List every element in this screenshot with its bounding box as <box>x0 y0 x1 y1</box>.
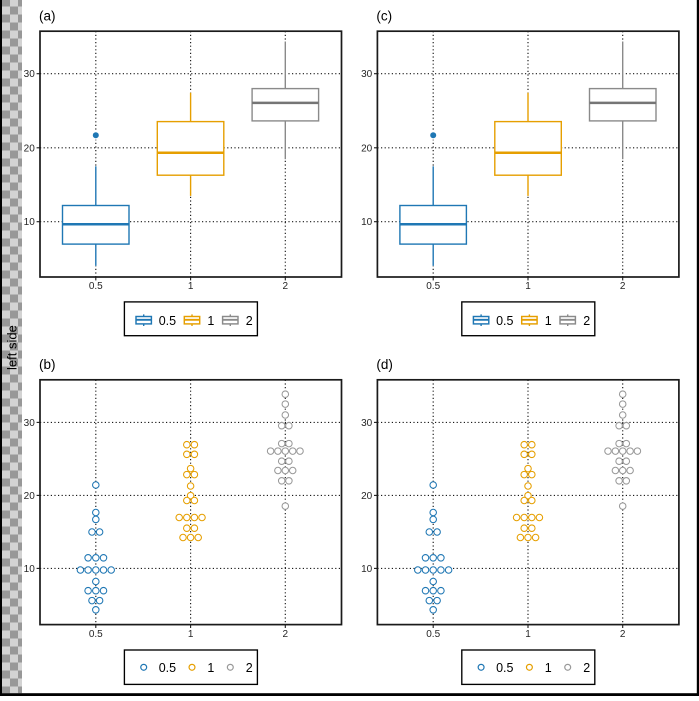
svg-text:1: 1 <box>525 281 531 292</box>
svg-text:2: 2 <box>620 281 626 292</box>
svg-text:1: 1 <box>188 281 194 292</box>
svg-text:0.5: 0.5 <box>426 281 440 292</box>
svg-text:1: 1 <box>545 661 552 675</box>
svg-text:(b): (b) <box>39 357 56 372</box>
svg-text:10: 10 <box>24 217 36 228</box>
svg-text:20: 20 <box>361 143 373 154</box>
svg-text:20: 20 <box>24 491 36 502</box>
svg-text:2: 2 <box>283 629 289 640</box>
svg-text:2: 2 <box>246 314 253 328</box>
svg-text:1: 1 <box>188 629 194 640</box>
svg-text:20: 20 <box>361 491 373 502</box>
svg-text:0.5: 0.5 <box>426 629 440 640</box>
svg-text:30: 30 <box>361 69 373 80</box>
svg-text:1: 1 <box>207 314 214 328</box>
svg-text:0.5: 0.5 <box>159 314 176 328</box>
svg-text:2: 2 <box>583 314 590 328</box>
svg-text:0.5: 0.5 <box>159 661 176 675</box>
svg-text:1: 1 <box>545 314 552 328</box>
svg-text:20: 20 <box>24 143 36 154</box>
svg-text:10: 10 <box>361 564 373 575</box>
svg-text:0.5: 0.5 <box>89 629 103 640</box>
svg-text:10: 10 <box>361 217 373 228</box>
svg-text:10: 10 <box>24 564 36 575</box>
svg-text:1: 1 <box>525 629 531 640</box>
svg-text:left side: left side <box>5 325 20 370</box>
svg-text:(c): (c) <box>376 9 392 24</box>
svg-text:2: 2 <box>620 629 626 640</box>
svg-text:1: 1 <box>207 661 214 675</box>
svg-text:30: 30 <box>361 418 373 429</box>
svg-text:0.5: 0.5 <box>89 281 103 292</box>
svg-text:(a): (a) <box>39 9 56 24</box>
svg-text:0.5: 0.5 <box>496 661 513 675</box>
svg-text:2: 2 <box>283 281 289 292</box>
svg-text:(d): (d) <box>376 357 393 372</box>
svg-text:2: 2 <box>583 661 590 675</box>
svg-text:30: 30 <box>24 69 36 80</box>
svg-text:0.5: 0.5 <box>496 314 513 328</box>
svg-text:2: 2 <box>246 661 253 675</box>
svg-text:30: 30 <box>24 418 36 429</box>
